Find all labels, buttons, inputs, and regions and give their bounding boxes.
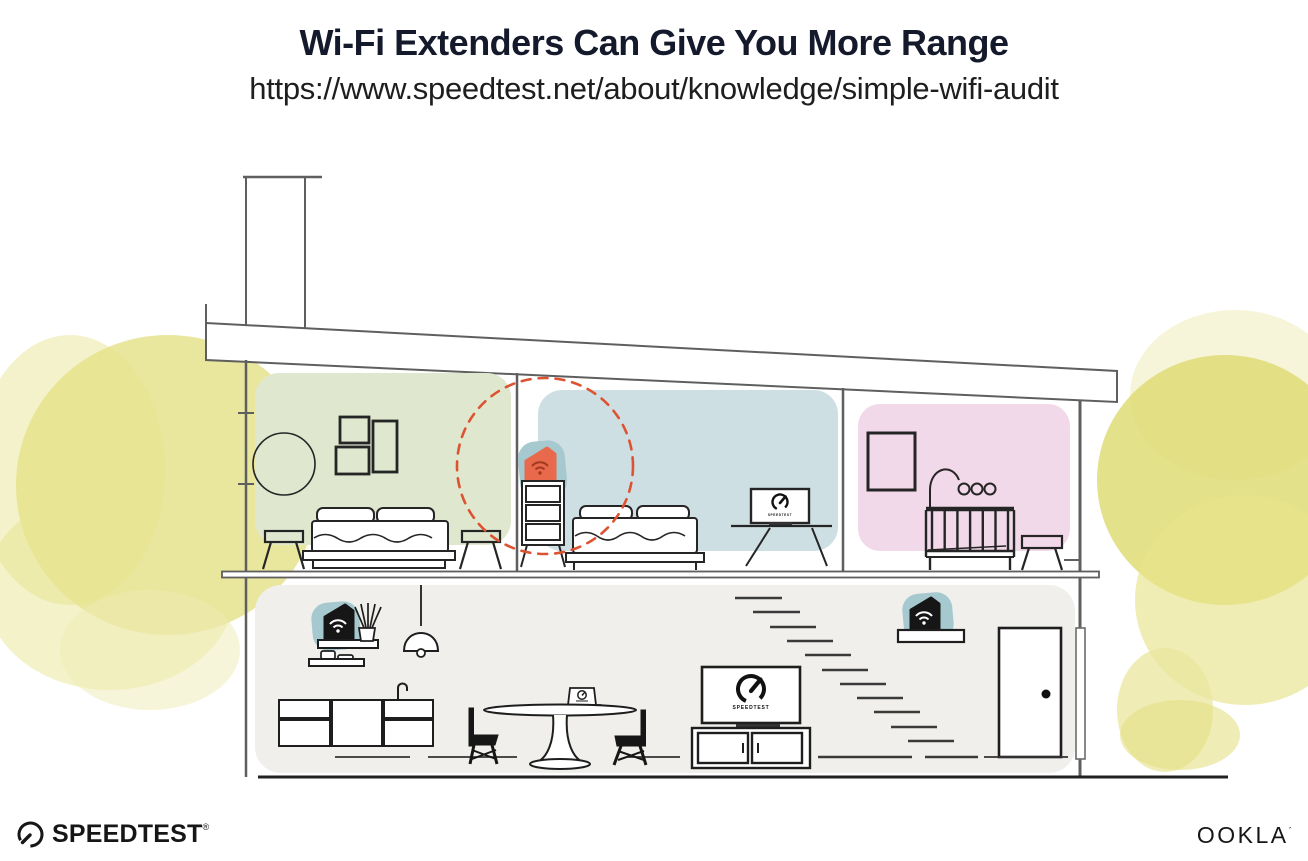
bed-green [303,508,455,568]
tv-console [692,728,810,768]
door-knob [1042,690,1051,699]
living-tv-label: SPEEDTEST [733,705,770,711]
chimney [243,177,322,328]
registered-mark: ® [202,822,209,832]
ookla-wordmark: OOKLA [1197,822,1289,848]
ookla-trade-mark: ´ [1289,826,1292,837]
ookla-logo: OOKLA´ [1197,822,1292,849]
stair-shelf [898,630,964,642]
door-side-wall [1076,628,1085,759]
house-cutaway-illustration: SPEEDTEST [0,0,1308,861]
living-tv: SPEEDTEST [702,667,800,728]
foliage-right [1097,310,1308,772]
speedtest-gauge-icon [16,820,45,849]
bedroom-tv-label: SPEEDTEST [768,513,792,517]
nursery-pink-bg [858,404,1070,551]
footer: SPEEDTEST® OOKLA´ [0,814,1308,854]
speedtest-wordmark: SPEEDTEST [52,820,202,849]
speedtest-logo: SPEEDTEST® [16,820,209,849]
floor-divider [222,572,1099,578]
